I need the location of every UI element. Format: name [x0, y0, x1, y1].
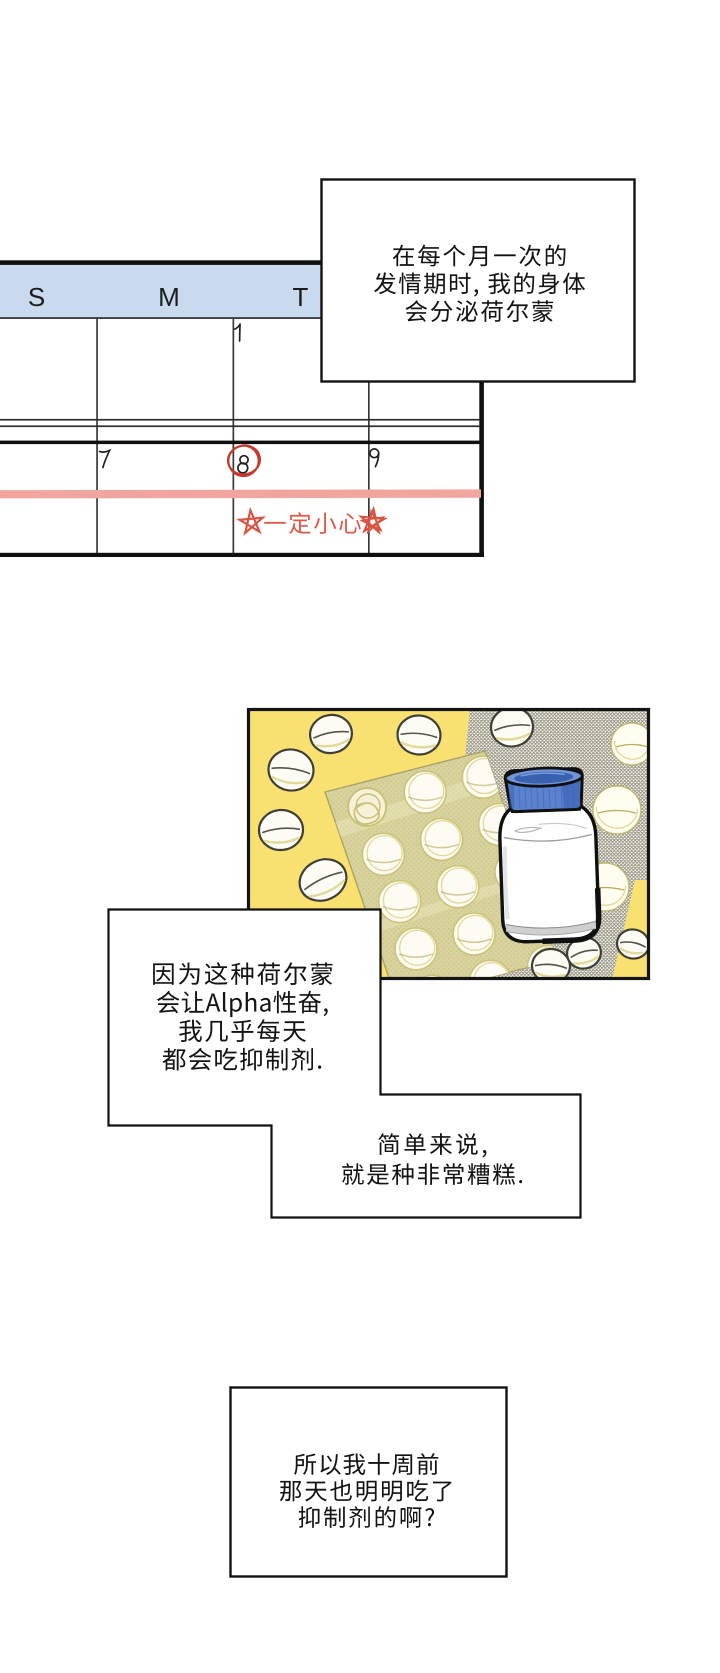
svg-text:M: M [158, 282, 180, 312]
svg-text:S: S [28, 282, 45, 312]
svg-text:T: T [293, 282, 309, 312]
